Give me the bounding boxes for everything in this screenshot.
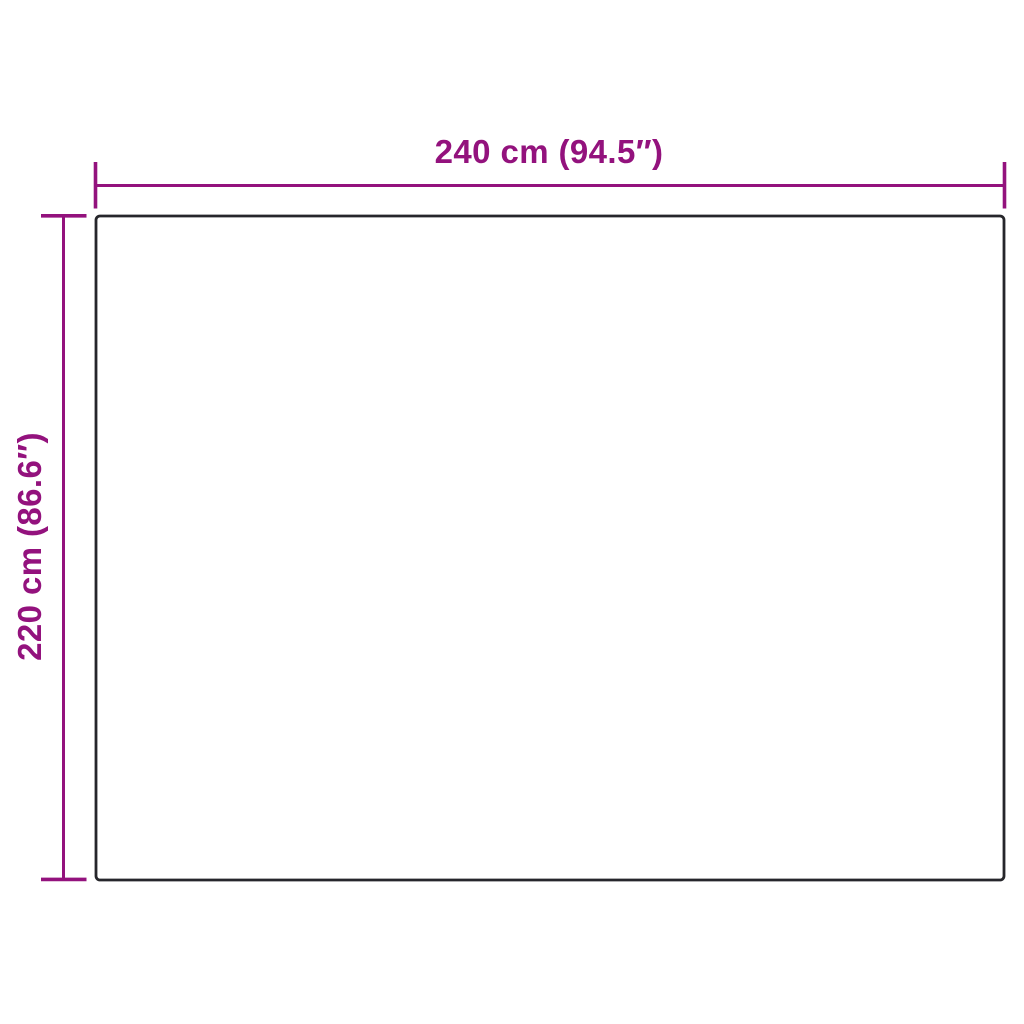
svg-text:240 cm (94.5″): 240 cm (94.5″) [435, 133, 664, 170]
svg-text:220 cm (86.6″): 220 cm (86.6″) [11, 432, 48, 661]
